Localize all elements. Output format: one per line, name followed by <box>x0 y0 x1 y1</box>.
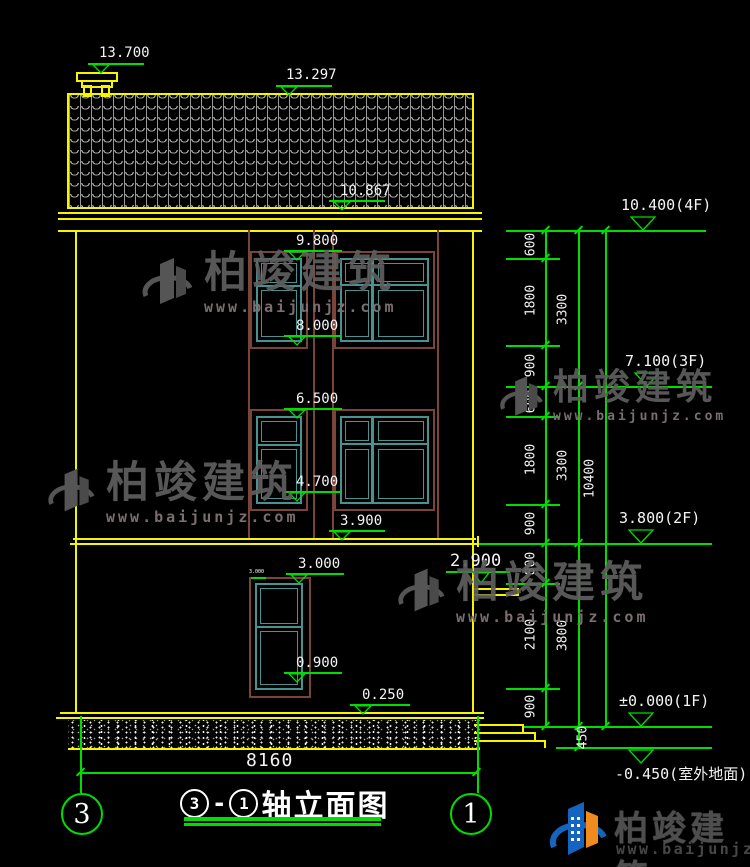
level-triangle-icon <box>92 64 110 74</box>
dim-chain-col1 <box>545 230 547 727</box>
company-logo-url: www.baijunjz.com <box>616 840 750 858</box>
level-label-4f: 10.400(4F) <box>621 196 711 214</box>
width-dim-line <box>80 772 477 774</box>
title-underline-2 <box>184 823 381 826</box>
step-edge <box>474 724 524 726</box>
window-divider <box>257 626 301 628</box>
floor-slab-line-upper <box>73 538 476 540</box>
elevation-drawing-canvas: 3.000 13.700 13.297 10.867 9.800 8.000 6… <box>0 0 750 867</box>
watermark-logo-icon <box>498 370 546 422</box>
dim-chain-col2 <box>578 230 580 749</box>
level-label-1f: ±0.000(1F) <box>619 692 709 710</box>
floor-slab-line-lower <box>70 543 479 545</box>
watermark-url: www.baijunjz.com <box>553 409 726 424</box>
level-triangle-icon <box>333 531 351 541</box>
window-pane <box>260 588 298 624</box>
step-riser <box>534 732 536 741</box>
dim-value: 900 <box>524 685 539 729</box>
level-label-ridge: 13.297 <box>286 67 337 83</box>
level-label-w2-top: 6.500 <box>296 391 338 407</box>
level-triangle-icon <box>630 216 656 231</box>
title-dash: - <box>212 791 226 815</box>
level-triangle-icon <box>290 574 308 584</box>
watermark-url: www.baijunjz.com <box>204 298 397 316</box>
level-triangle-icon <box>354 705 372 715</box>
title-axis-start-circle: 3 <box>180 789 209 818</box>
watermark: 柏竣建筑 www.baijunjz.com <box>46 462 299 526</box>
floor-slab-right-tick <box>477 536 479 547</box>
window-pane <box>345 421 369 441</box>
level-line-2f <box>479 543 712 545</box>
level-label-w3-sill: 8.000 <box>296 318 338 334</box>
step-riser <box>544 740 546 748</box>
watermark-brand: 柏竣建筑 <box>204 252 397 295</box>
window-pane <box>378 421 424 441</box>
window-pane <box>345 449 369 499</box>
level-label-slab2: 3.900 <box>340 513 382 529</box>
window-divider <box>258 444 300 446</box>
level-triangle-icon <box>333 201 351 211</box>
watermark-brand: 柏竣建筑 <box>553 370 726 406</box>
plinth-line-upper <box>60 712 484 714</box>
watermark-logo-icon <box>140 252 196 310</box>
window-1f-micro-mark <box>251 577 266 579</box>
level-label-2f: 3.800(2F) <box>619 509 700 527</box>
window-2f-wide-frame <box>334 409 435 511</box>
dim-value: 600 <box>524 223 539 267</box>
level-label-w3-top: 9.800 <box>296 233 338 249</box>
watermark-url: www.baijunjz.com <box>456 608 649 626</box>
axis-number: 1 <box>462 799 479 830</box>
company-logo-icon <box>546 795 610 863</box>
window-1f-micro-tag: 3.000 <box>249 570 264 574</box>
axis-extension-left <box>80 716 82 793</box>
axis-bubble-1: 1 <box>450 793 492 835</box>
watermark: 柏竣建筑 www.baijunjz.com <box>140 252 397 316</box>
level-label-w1-sill: 0.900 <box>296 655 338 671</box>
level-triangle-icon <box>288 336 306 346</box>
width-dim-value: 8160 <box>246 750 293 771</box>
watermark-logo-icon <box>46 462 98 518</box>
level-triangle-icon <box>280 86 298 96</box>
level-label-w1-top: 3.000 <box>298 556 340 572</box>
roof-tile-pattern <box>67 93 474 209</box>
level-line-1f <box>524 726 712 728</box>
dim-value: 3300 <box>556 444 571 488</box>
plinth-line-lower <box>56 717 484 719</box>
axis-extension-right <box>477 716 479 793</box>
level-label-eave: 10.867 <box>340 183 391 199</box>
roof-fascia-line-2 <box>58 218 482 220</box>
chimney-leg-right <box>101 85 110 97</box>
watermark-brand: 柏竣建筑 <box>106 462 299 505</box>
dim-value: 900 <box>524 502 539 546</box>
title-underline-1 <box>184 817 381 821</box>
wall-right-edge <box>472 230 474 714</box>
watermark-logo-icon <box>396 562 448 618</box>
level-label-w2-sill: 4.700 <box>296 474 338 490</box>
level-triangle-icon <box>628 749 654 764</box>
step-edge <box>474 732 536 734</box>
watermark: 柏竣建筑 www.baijunjz.com <box>498 370 726 424</box>
window-2f-wide <box>340 416 429 504</box>
window-transom <box>342 443 427 445</box>
watermark-url: www.baijunjz.com <box>106 508 299 526</box>
level-triangle-icon <box>628 529 654 544</box>
dim-chain-col3 <box>605 230 607 727</box>
window-pane <box>378 449 424 499</box>
chimney <box>76 72 118 95</box>
level-label-chimney: 13.700 <box>99 45 150 61</box>
foundation-stipple-band <box>68 720 480 750</box>
level-triangle-icon <box>288 673 306 683</box>
level-label-ground: -0.450(室外地面) <box>615 763 747 784</box>
dim-value: 10400 <box>583 457 598 501</box>
axis-number: 3 <box>73 799 90 830</box>
dim-value: 1800 <box>524 279 539 323</box>
level-triangle-icon <box>288 409 306 419</box>
dim-value: 1800 <box>524 438 539 482</box>
watermark-brand: 柏竣建筑 <box>456 562 649 605</box>
level-label-plinth: 0.250 <box>362 687 404 703</box>
window-mullion <box>371 418 374 502</box>
axis-bubble-3: 3 <box>61 793 103 835</box>
watermark: 柏竣建筑 www.baijunjz.com <box>396 562 649 626</box>
title-axis-end-circle: 1 <box>229 789 258 818</box>
level-triangle-icon <box>628 712 654 727</box>
dim-value: 3300 <box>556 288 571 332</box>
chimney-leg-left <box>83 85 92 97</box>
window-pane <box>261 421 297 442</box>
dim-value-450: 450 <box>576 716 591 760</box>
roof-fascia-line-1 <box>58 212 482 214</box>
